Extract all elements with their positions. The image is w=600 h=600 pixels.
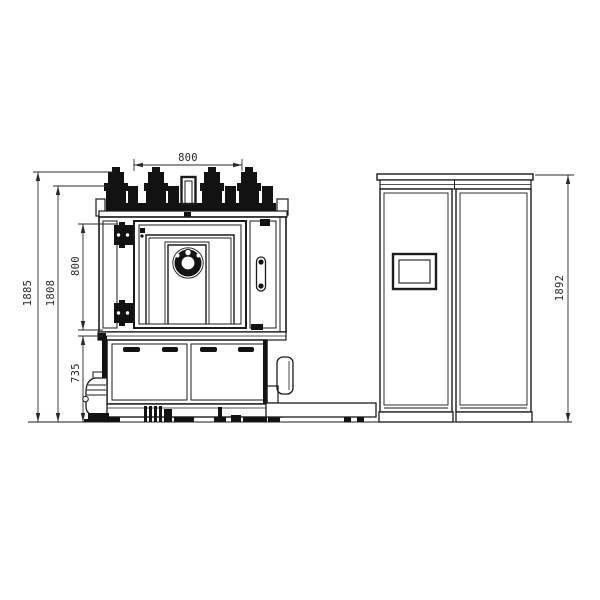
engineering-drawing: 800 1885 1808 800 735 1892 [0,0,600,600]
cabinet-door-right [456,189,531,412]
dim-label-1808: 1808 [45,280,57,307]
dim-label-1892: 1892 [554,275,566,302]
viewport-top-knob [185,249,191,255]
cabinet-plinth-right [456,412,532,422]
dim-label-1885: 1885 [22,280,34,307]
viewport-bolt-left [176,254,180,258]
cabinet-top-cap [377,174,533,180]
dim-label-800-left: 800 [70,256,82,276]
viewport-bolt-right [197,254,201,258]
dim-label-735: 735 [70,363,82,383]
drawing-canvas: 800 1885 1808 800 735 1892 [0,0,600,600]
viewport-window [173,248,203,278]
chamber-bottom-band [98,332,286,340]
right-panel-latch-top [260,219,270,226]
cabinet-plinth-left [379,412,453,422]
chamber-lid-plate [99,211,287,217]
duct-foot-2 [357,417,364,422]
door-hinge-top [114,222,133,248]
vent-slot-1 [123,347,140,352]
cabinet-window [393,254,436,289]
side-bracket [277,357,293,394]
cabinet-door-left [380,189,452,412]
duct-run [266,403,376,417]
duct-foot-1 [344,417,351,422]
vent-slot-4 [238,347,254,352]
door-stop-pin [140,234,143,237]
chamber-door [134,221,246,328]
door-hinge-bottom [114,300,133,326]
center-port [182,177,196,204]
vacuum-chamber [99,217,286,332]
door-handle [257,257,266,291]
dim-label-800-top: 800 [178,152,198,164]
vent-slot-3 [200,347,217,352]
right-panel-latch-bottom [251,324,263,330]
vent-slot-2 [162,347,178,352]
viewport-glass [181,256,195,270]
door-stop-block [140,228,145,233]
